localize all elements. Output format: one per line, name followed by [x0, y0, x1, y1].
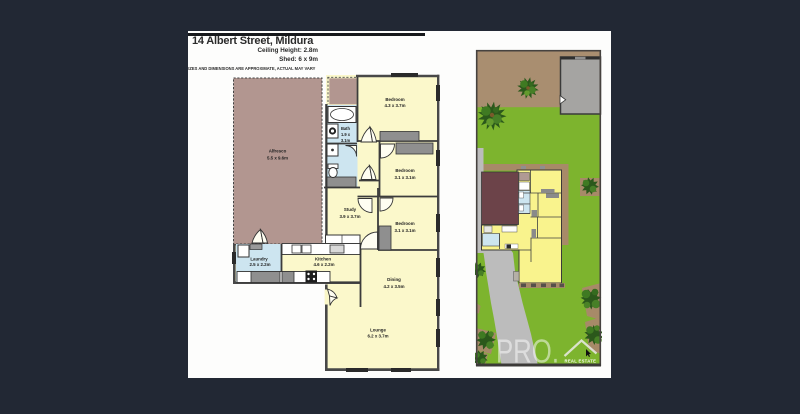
svg-text:2.5 x 2.2m: 2.5 x 2.2m: [250, 262, 271, 267]
svg-text:PRO.: PRO.: [496, 333, 559, 368]
svg-text:REAL ESTATE: REAL ESTATE: [565, 358, 597, 363]
svg-text:4.2 x 3.5m: 4.2 x 3.5m: [384, 284, 405, 289]
svg-text:Laundry: Laundry: [250, 257, 268, 262]
svg-text:4.3 x 3.7m: 4.3 x 3.7m: [385, 103, 406, 108]
svg-text:Study: Study: [344, 207, 357, 212]
svg-text:4.6 x 2.2m: 4.6 x 2.2m: [314, 262, 335, 267]
svg-text:Bedroom: Bedroom: [395, 168, 414, 173]
svg-text:Bedroom: Bedroom: [395, 221, 414, 226]
svg-text:5.5 x 9.6m: 5.5 x 9.6m: [267, 156, 288, 161]
svg-text:Bedroom: Bedroom: [385, 97, 404, 102]
svg-text:Bath: Bath: [341, 126, 351, 131]
svg-text:3.9 x 3.7m: 3.9 x 3.7m: [340, 214, 361, 219]
svg-text:6.2 x 3.7m: 6.2 x 3.7m: [368, 334, 389, 339]
svg-text:Lounge: Lounge: [370, 328, 386, 333]
svg-text:Dining: Dining: [387, 277, 401, 282]
svg-text:3.1 x 3.1m: 3.1 x 3.1m: [395, 228, 416, 233]
svg-text:3.1m: 3.1m: [341, 138, 351, 143]
svg-text:Kitchen: Kitchen: [315, 257, 331, 262]
svg-text:1.9 x: 1.9 x: [341, 132, 351, 137]
svg-text:3.1 x 3.1m: 3.1 x 3.1m: [395, 175, 416, 180]
svg-text:Alfresco: Alfresco: [269, 149, 287, 154]
